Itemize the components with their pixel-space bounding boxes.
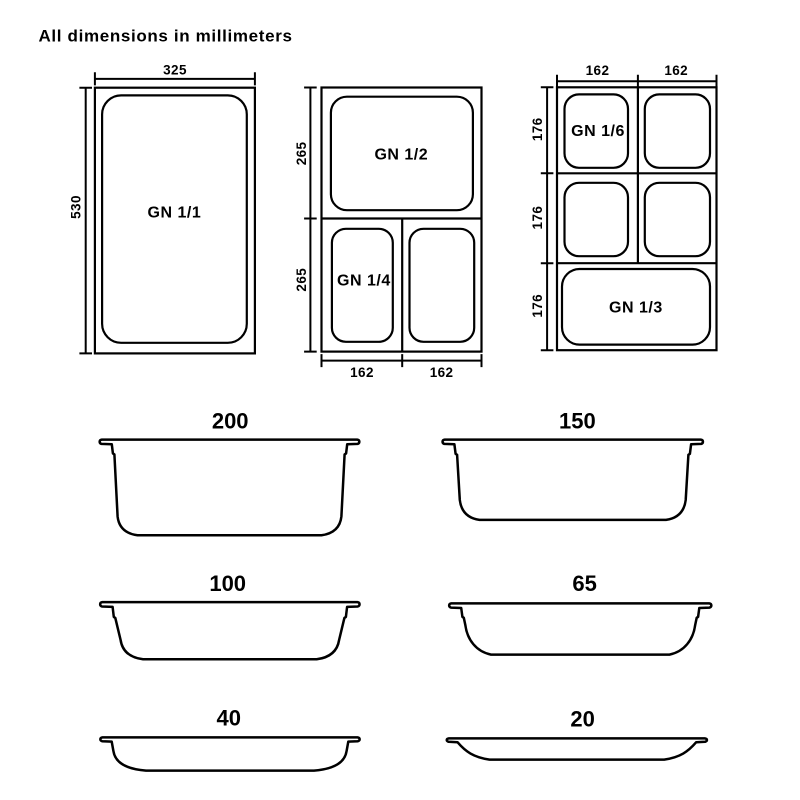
- svg-text:100: 100: [209, 571, 246, 596]
- svg-text:200: 200: [212, 409, 249, 434]
- svg-text:150: 150: [559, 409, 596, 434]
- svg-text:530: 530: [69, 195, 84, 219]
- svg-text:65: 65: [572, 571, 596, 596]
- svg-text:GN 1/4: GN 1/4: [337, 272, 391, 289]
- svg-text:325: 325: [163, 62, 187, 77]
- svg-text:GN 1/2: GN 1/2: [374, 146, 428, 163]
- svg-text:162: 162: [430, 365, 454, 380]
- svg-text:20: 20: [570, 707, 594, 732]
- svg-text:176: 176: [530, 294, 545, 318]
- svg-text:40: 40: [217, 706, 241, 731]
- svg-text:176: 176: [530, 206, 545, 230]
- svg-text:162: 162: [664, 63, 688, 78]
- svg-text:GN 1/6: GN 1/6: [571, 123, 625, 140]
- svg-text:GN 1/1: GN 1/1: [148, 204, 202, 221]
- svg-text:265: 265: [294, 268, 309, 292]
- svg-text:176: 176: [530, 117, 545, 141]
- svg-text:162: 162: [586, 63, 610, 78]
- svg-text:162: 162: [350, 365, 374, 380]
- svg-text:All dimensions in millimeters: All dimensions in millimeters: [39, 27, 293, 46]
- svg-text:265: 265: [294, 141, 309, 165]
- svg-text:GN 1/3: GN 1/3: [609, 299, 663, 316]
